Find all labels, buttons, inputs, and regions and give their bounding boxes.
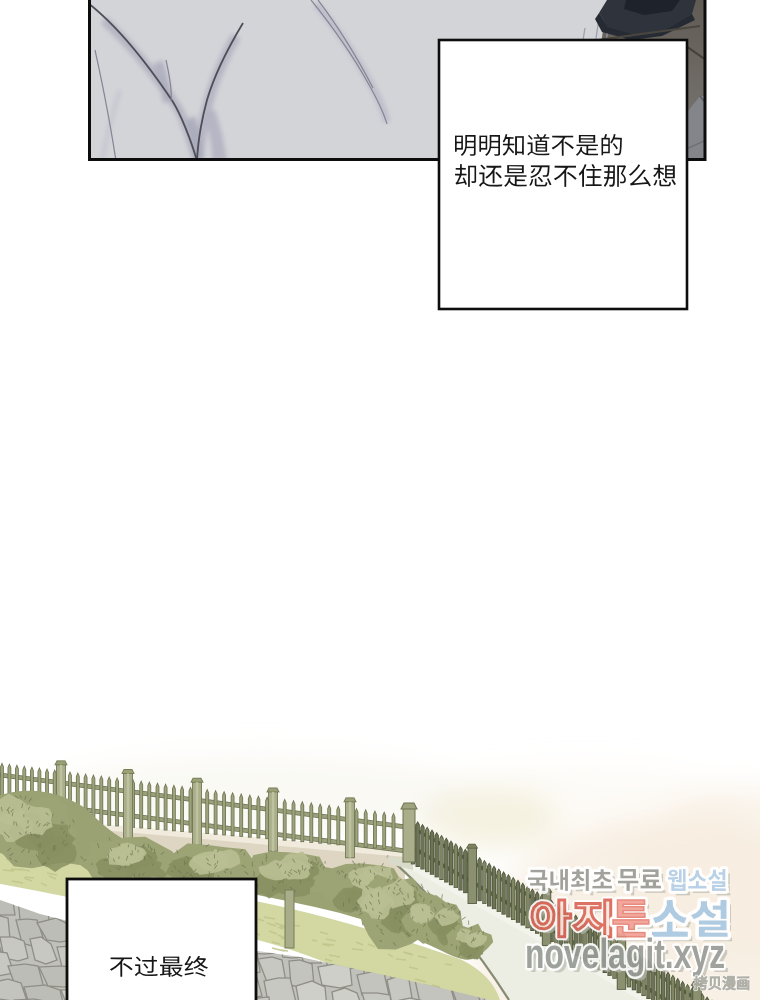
svg-text:novelagit.xyz: novelagit.xyz xyxy=(525,930,725,977)
